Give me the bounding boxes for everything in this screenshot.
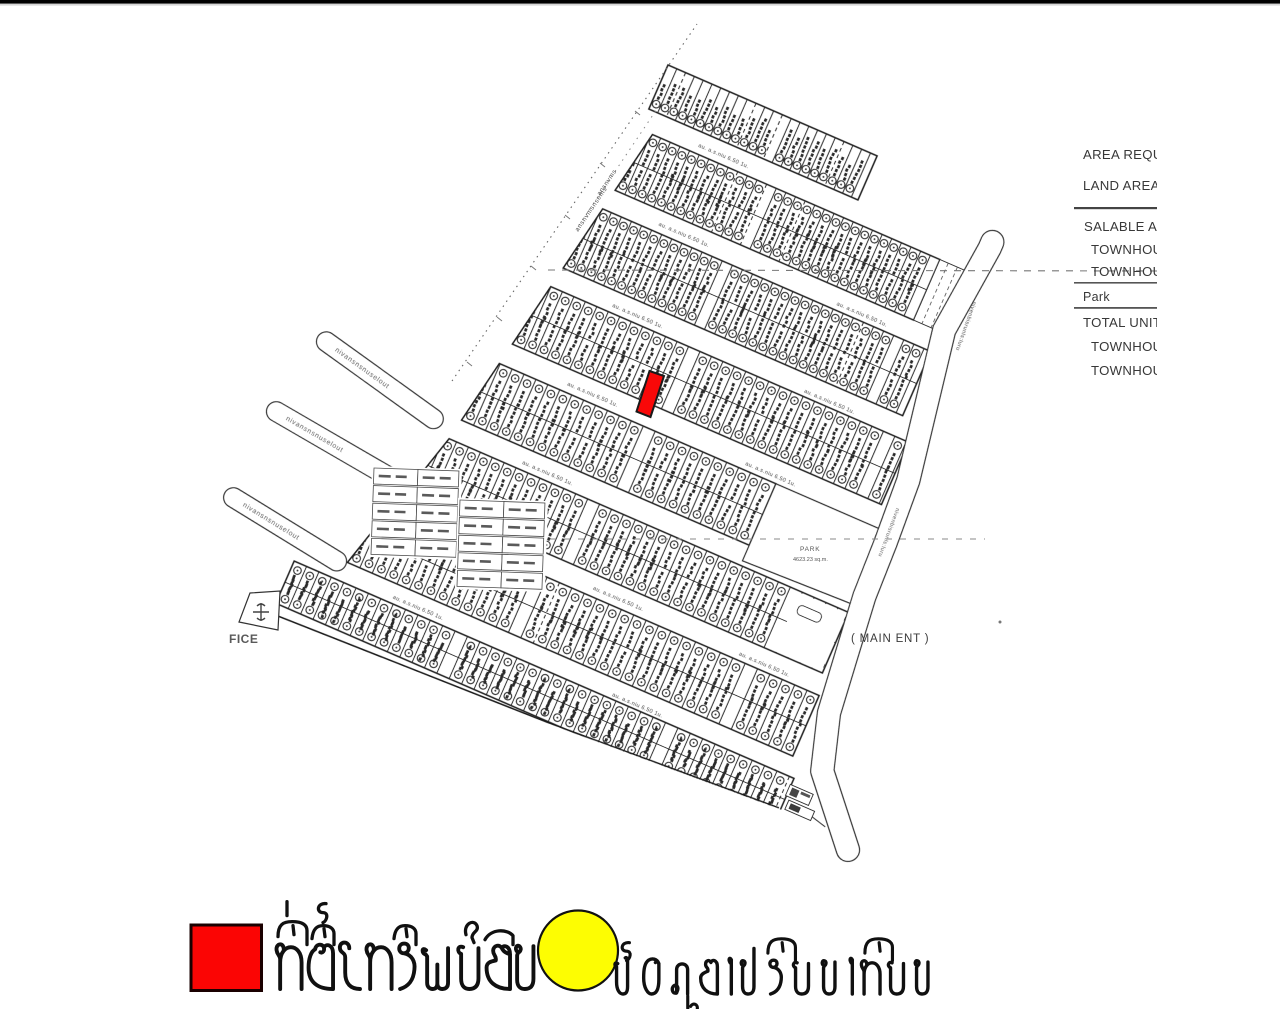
- svg-text:FICE: FICE: [229, 632, 258, 646]
- svg-text:Park: Park: [1083, 290, 1110, 304]
- svg-text:PARK: PARK: [800, 546, 820, 553]
- svg-text:( MAIN ENT ): ( MAIN ENT ): [851, 633, 929, 645]
- svg-text:LAND AREA: LAND AREA: [1083, 178, 1160, 193]
- svg-text:TOTAL UNIT: TOTAL UNIT: [1083, 315, 1161, 330]
- svg-text:4623.23 sq.m.: 4623.23 sq.m.: [793, 557, 828, 563]
